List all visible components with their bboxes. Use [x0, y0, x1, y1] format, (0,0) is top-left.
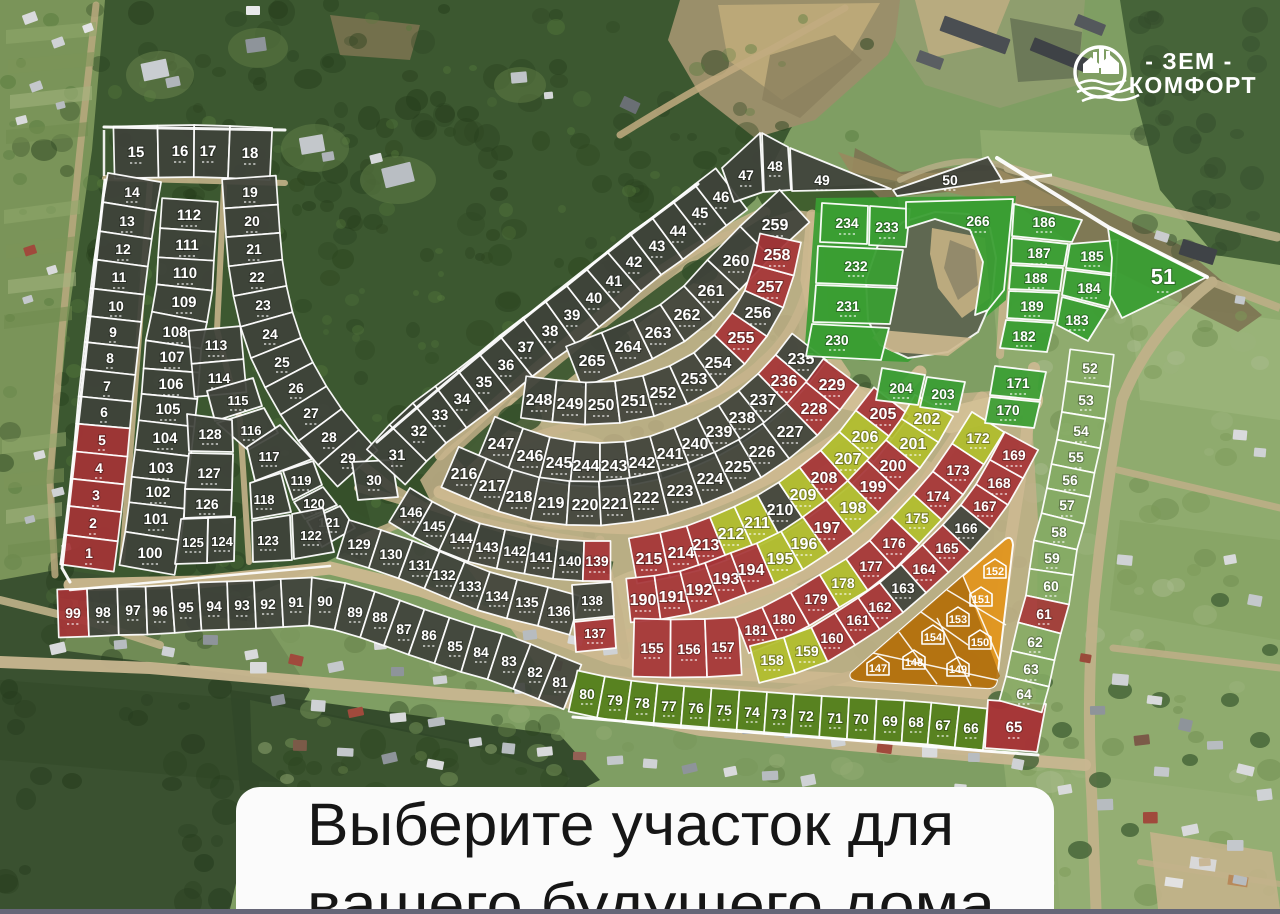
svg-text:157: 157 [711, 639, 735, 655]
svg-text:151: 151 [972, 594, 990, 606]
svg-text:262: 262 [674, 307, 701, 324]
svg-text:9: 9 [109, 324, 117, 340]
svg-text:238: 238 [729, 410, 756, 427]
svg-text:220: 220 [572, 497, 599, 514]
svg-text:247: 247 [488, 436, 515, 453]
svg-text:125: 125 [182, 535, 204, 550]
svg-text:126: 126 [195, 496, 219, 512]
svg-text:174: 174 [926, 488, 950, 504]
svg-text:37: 37 [518, 339, 535, 356]
svg-text:188: 188 [1024, 270, 1048, 286]
svg-text:12: 12 [115, 241, 131, 257]
svg-text:183: 183 [1065, 312, 1089, 328]
svg-text:223: 223 [667, 483, 694, 500]
svg-text:18: 18 [242, 145, 259, 162]
svg-text:258: 258 [764, 247, 791, 264]
svg-text:106: 106 [158, 376, 183, 393]
svg-text:266: 266 [966, 213, 990, 229]
svg-text:31: 31 [389, 447, 406, 464]
svg-text:187: 187 [1027, 245, 1051, 261]
svg-text:206: 206 [852, 429, 879, 446]
svg-text:148: 148 [905, 657, 923, 669]
svg-text:234: 234 [835, 215, 859, 231]
svg-text:66: 66 [963, 720, 979, 736]
svg-text:257: 257 [757, 279, 784, 296]
svg-text:168: 168 [987, 475, 1011, 491]
svg-text:84: 84 [473, 644, 489, 660]
svg-text:46: 46 [713, 189, 730, 206]
svg-text:249: 249 [557, 396, 584, 413]
svg-text:246: 246 [517, 448, 544, 465]
svg-text:261: 261 [698, 283, 725, 300]
svg-text:135: 135 [515, 594, 539, 610]
svg-text:19: 19 [242, 184, 258, 200]
svg-text:260: 260 [723, 253, 750, 270]
svg-text:159: 159 [795, 643, 819, 659]
svg-text:14: 14 [124, 184, 140, 200]
svg-text:38: 38 [542, 323, 559, 340]
svg-text:115: 115 [228, 393, 249, 408]
svg-text:123: 123 [257, 533, 279, 548]
svg-text:185: 185 [1080, 248, 1104, 264]
svg-text:193: 193 [713, 571, 740, 588]
svg-text:64: 64 [1016, 686, 1032, 702]
svg-text:79: 79 [607, 692, 623, 708]
svg-text:65: 65 [1006, 719, 1023, 736]
svg-text:150: 150 [971, 637, 989, 649]
svg-text:КОМФОРТ: КОМФОРТ [1129, 72, 1257, 98]
svg-text:43: 43 [649, 238, 666, 255]
svg-text:95: 95 [178, 599, 194, 615]
svg-text:153: 153 [949, 614, 967, 626]
svg-text:122: 122 [300, 528, 322, 543]
svg-text:88: 88 [372, 609, 388, 625]
svg-text:74: 74 [744, 704, 760, 720]
svg-text:129: 129 [347, 536, 371, 552]
svg-text:182: 182 [1012, 328, 1036, 344]
svg-text:186: 186 [1032, 214, 1056, 230]
svg-text:204: 204 [889, 380, 913, 396]
svg-text:17: 17 [200, 143, 217, 160]
svg-text:221: 221 [602, 496, 629, 513]
svg-text:137: 137 [584, 626, 606, 641]
svg-text:192: 192 [686, 582, 713, 599]
svg-text:190: 190 [630, 592, 657, 609]
svg-text:171: 171 [1006, 375, 1030, 391]
svg-text:7: 7 [103, 378, 111, 394]
svg-text:144: 144 [449, 530, 473, 546]
svg-text:232: 232 [844, 258, 868, 274]
svg-text:27: 27 [303, 405, 319, 421]
svg-text:265: 265 [579, 353, 606, 370]
svg-text:181: 181 [744, 622, 768, 638]
svg-text:218: 218 [506, 489, 533, 506]
svg-text:178: 178 [831, 575, 855, 591]
svg-text:102: 102 [145, 484, 170, 501]
svg-text:72: 72 [798, 708, 814, 724]
svg-text:86: 86 [421, 627, 437, 643]
svg-text:203: 203 [931, 386, 955, 402]
svg-text:263: 263 [645, 325, 672, 342]
svg-text:167: 167 [973, 498, 997, 514]
svg-text:44: 44 [670, 223, 687, 240]
svg-text:82: 82 [527, 664, 543, 680]
svg-text:63: 63 [1023, 661, 1039, 677]
svg-text:93: 93 [234, 597, 250, 613]
svg-text:21: 21 [246, 241, 262, 257]
svg-text:62: 62 [1027, 634, 1043, 650]
svg-text:133: 133 [458, 578, 482, 594]
svg-text:141: 141 [529, 549, 553, 565]
svg-text:53: 53 [1078, 392, 1094, 408]
svg-text:155: 155 [640, 640, 664, 656]
svg-text:207: 207 [835, 451, 862, 468]
svg-text:вашего будущего дома: вашего будущего дома [307, 871, 996, 909]
svg-text:209: 209 [790, 487, 817, 504]
svg-text:205: 205 [870, 406, 897, 423]
svg-text:177: 177 [859, 558, 883, 574]
svg-text:- ЗЕМ -: - ЗЕМ - [1145, 48, 1233, 74]
svg-text:33: 33 [432, 407, 449, 424]
svg-text:254: 254 [705, 355, 732, 372]
svg-text:104: 104 [152, 430, 178, 447]
svg-text:22: 22 [249, 269, 265, 285]
svg-text:26: 26 [288, 380, 304, 396]
svg-text:69: 69 [882, 713, 898, 729]
svg-text:146: 146 [399, 504, 423, 520]
svg-text:241: 241 [657, 446, 684, 463]
svg-text:170: 170 [996, 402, 1020, 418]
svg-text:114: 114 [208, 370, 231, 386]
svg-text:163: 163 [891, 580, 915, 596]
svg-text:3: 3 [92, 487, 100, 503]
svg-text:256: 256 [745, 305, 772, 322]
svg-text:83: 83 [501, 653, 517, 669]
svg-text:208: 208 [811, 470, 838, 487]
svg-text:134: 134 [485, 588, 509, 604]
svg-text:172: 172 [966, 430, 990, 446]
svg-text:191: 191 [659, 589, 686, 606]
svg-text:222: 222 [633, 490, 660, 507]
svg-text:80: 80 [579, 686, 595, 702]
svg-text:70: 70 [853, 711, 869, 727]
svg-text:105: 105 [155, 401, 180, 418]
svg-text:140: 140 [558, 553, 582, 569]
svg-text:164: 164 [912, 561, 936, 577]
svg-text:32: 32 [411, 423, 428, 440]
svg-text:228: 228 [801, 401, 828, 418]
svg-text:225: 225 [725, 459, 752, 476]
svg-text:4: 4 [95, 460, 103, 476]
svg-text:128: 128 [198, 426, 222, 442]
svg-text:219: 219 [538, 495, 565, 512]
svg-text:215: 215 [636, 551, 663, 568]
svg-text:118: 118 [254, 492, 275, 507]
svg-text:40: 40 [586, 290, 603, 307]
svg-text:116: 116 [241, 423, 262, 438]
svg-text:195: 195 [767, 551, 794, 568]
svg-text:20: 20 [244, 213, 260, 229]
svg-text:158: 158 [760, 652, 784, 668]
svg-text:156: 156 [677, 641, 701, 657]
svg-text:264: 264 [615, 339, 642, 356]
svg-text:201: 201 [900, 436, 927, 453]
svg-text:87: 87 [396, 621, 412, 637]
svg-text:8: 8 [106, 350, 114, 366]
svg-text:50: 50 [942, 172, 958, 188]
svg-text:231: 231 [836, 298, 860, 314]
svg-text:224: 224 [697, 471, 724, 488]
svg-text:97: 97 [125, 602, 141, 618]
svg-text:179: 179 [804, 591, 828, 607]
svg-text:127: 127 [197, 465, 221, 481]
svg-text:112: 112 [177, 207, 201, 224]
svg-text:15: 15 [128, 144, 145, 161]
svg-text:101: 101 [143, 511, 168, 528]
svg-text:71: 71 [827, 710, 843, 726]
svg-text:244: 244 [573, 458, 600, 475]
svg-text:245: 245 [546, 455, 573, 472]
svg-text:252: 252 [650, 385, 677, 402]
svg-text:99: 99 [65, 605, 81, 621]
svg-text:56: 56 [1062, 472, 1078, 488]
svg-text:55: 55 [1068, 449, 1084, 465]
svg-text:169: 169 [1002, 447, 1026, 463]
svg-text:216: 216 [451, 466, 478, 483]
svg-text:25: 25 [274, 354, 290, 370]
svg-text:77: 77 [661, 698, 677, 714]
svg-text:30: 30 [366, 472, 382, 488]
svg-text:251: 251 [621, 393, 648, 410]
svg-text:52: 52 [1082, 360, 1098, 376]
svg-text:162: 162 [868, 599, 892, 615]
svg-text:5: 5 [98, 432, 106, 448]
svg-text:143: 143 [475, 539, 499, 555]
svg-text:175: 175 [905, 510, 929, 526]
svg-text:89: 89 [347, 604, 363, 620]
svg-text:198: 198 [840, 500, 867, 517]
svg-text:109: 109 [171, 294, 196, 311]
svg-text:94: 94 [206, 598, 222, 614]
svg-text:91: 91 [288, 594, 304, 610]
svg-text:92: 92 [260, 596, 276, 612]
svg-text:11: 11 [112, 269, 127, 285]
svg-text:166: 166 [954, 520, 978, 536]
svg-text:85: 85 [447, 638, 463, 654]
svg-text:138: 138 [581, 593, 603, 608]
svg-text:49: 49 [814, 172, 830, 188]
svg-text:42: 42 [626, 254, 643, 271]
svg-text:100: 100 [137, 545, 162, 562]
svg-text:142: 142 [503, 543, 527, 559]
svg-text:2: 2 [89, 515, 97, 531]
svg-text:240: 240 [682, 436, 709, 453]
svg-text:117: 117 [259, 449, 280, 464]
svg-text:73: 73 [771, 706, 787, 722]
svg-text:96: 96 [152, 603, 168, 619]
svg-text:147: 147 [869, 663, 887, 675]
svg-text:67: 67 [935, 717, 951, 733]
svg-text:214: 214 [668, 545, 695, 562]
svg-text:24: 24 [262, 326, 278, 342]
svg-text:59: 59 [1044, 550, 1060, 566]
svg-text:165: 165 [935, 540, 959, 556]
svg-text:176: 176 [882, 535, 906, 551]
svg-text:259: 259 [762, 217, 789, 234]
svg-text:119: 119 [291, 473, 312, 488]
svg-text:229: 229 [819, 377, 846, 394]
svg-text:243: 243 [601, 458, 628, 475]
svg-text:60: 60 [1043, 578, 1059, 594]
svg-text:6: 6 [100, 404, 108, 420]
svg-text:237: 237 [750, 392, 777, 409]
svg-text:23: 23 [255, 297, 271, 313]
svg-text:196: 196 [791, 536, 818, 553]
svg-text:1: 1 [85, 545, 93, 561]
svg-text:76: 76 [688, 700, 704, 716]
svg-text:160: 160 [820, 630, 844, 646]
svg-text:173: 173 [946, 462, 970, 478]
svg-text:145: 145 [422, 518, 446, 534]
svg-text:75: 75 [716, 702, 732, 718]
svg-text:90: 90 [317, 593, 333, 609]
svg-text:98: 98 [95, 604, 111, 620]
svg-text:152: 152 [986, 566, 1004, 578]
svg-text:213: 213 [693, 537, 720, 554]
svg-text:45: 45 [692, 205, 709, 222]
svg-text:108: 108 [162, 324, 187, 341]
svg-text:184: 184 [1077, 280, 1101, 296]
svg-text:54: 54 [1073, 423, 1089, 439]
svg-text:200: 200 [880, 458, 907, 475]
svg-text:124: 124 [211, 534, 233, 549]
svg-text:131: 131 [408, 557, 432, 573]
svg-text:47: 47 [738, 167, 754, 183]
svg-text:248: 248 [526, 392, 553, 409]
svg-text:41: 41 [606, 273, 623, 290]
svg-text:197: 197 [814, 520, 841, 537]
svg-text:39: 39 [564, 307, 581, 324]
svg-text:51: 51 [1151, 264, 1175, 289]
svg-text:199: 199 [860, 479, 887, 496]
svg-text:28: 28 [321, 429, 337, 445]
svg-text:34: 34 [454, 391, 471, 408]
svg-text:16: 16 [172, 143, 189, 160]
svg-text:61: 61 [1036, 606, 1052, 622]
svg-text:226: 226 [749, 444, 776, 461]
svg-text:103: 103 [148, 460, 173, 477]
svg-text:217: 217 [479, 478, 506, 495]
svg-text:Выберите участок для: Выберите участок для [307, 791, 954, 858]
svg-text:81: 81 [552, 674, 568, 690]
svg-text:194: 194 [738, 562, 765, 579]
svg-text:212: 212 [718, 526, 745, 543]
svg-text:236: 236 [771, 373, 798, 390]
svg-text:149: 149 [949, 664, 967, 676]
svg-text:113: 113 [205, 337, 228, 353]
svg-text:57: 57 [1059, 497, 1075, 513]
svg-text:253: 253 [681, 371, 708, 388]
svg-text:242: 242 [629, 455, 656, 472]
svg-text:233: 233 [875, 219, 899, 235]
svg-text:58: 58 [1051, 524, 1067, 540]
svg-text:250: 250 [588, 397, 615, 414]
svg-text:161: 161 [846, 612, 870, 628]
svg-text:78: 78 [634, 695, 650, 711]
svg-text:154: 154 [924, 632, 943, 644]
svg-text:36: 36 [498, 357, 515, 374]
svg-text:210: 210 [767, 502, 794, 519]
svg-text:180: 180 [772, 611, 796, 627]
svg-text:35: 35 [476, 374, 493, 391]
svg-text:227: 227 [777, 424, 804, 441]
svg-text:136: 136 [547, 603, 571, 619]
svg-text:110: 110 [173, 265, 197, 282]
svg-text:189: 189 [1020, 298, 1044, 314]
svg-text:130: 130 [379, 546, 403, 562]
svg-text:107: 107 [159, 349, 184, 366]
svg-text:111: 111 [175, 237, 198, 254]
svg-text:10: 10 [108, 298, 124, 314]
svg-text:230: 230 [825, 332, 849, 348]
svg-text:139: 139 [585, 553, 609, 569]
svg-text:255: 255 [728, 330, 755, 347]
svg-text:48: 48 [767, 158, 783, 174]
svg-text:68: 68 [908, 714, 924, 730]
svg-text:132: 132 [432, 567, 456, 583]
svg-text:13: 13 [119, 213, 135, 229]
svg-text:202: 202 [914, 411, 941, 428]
